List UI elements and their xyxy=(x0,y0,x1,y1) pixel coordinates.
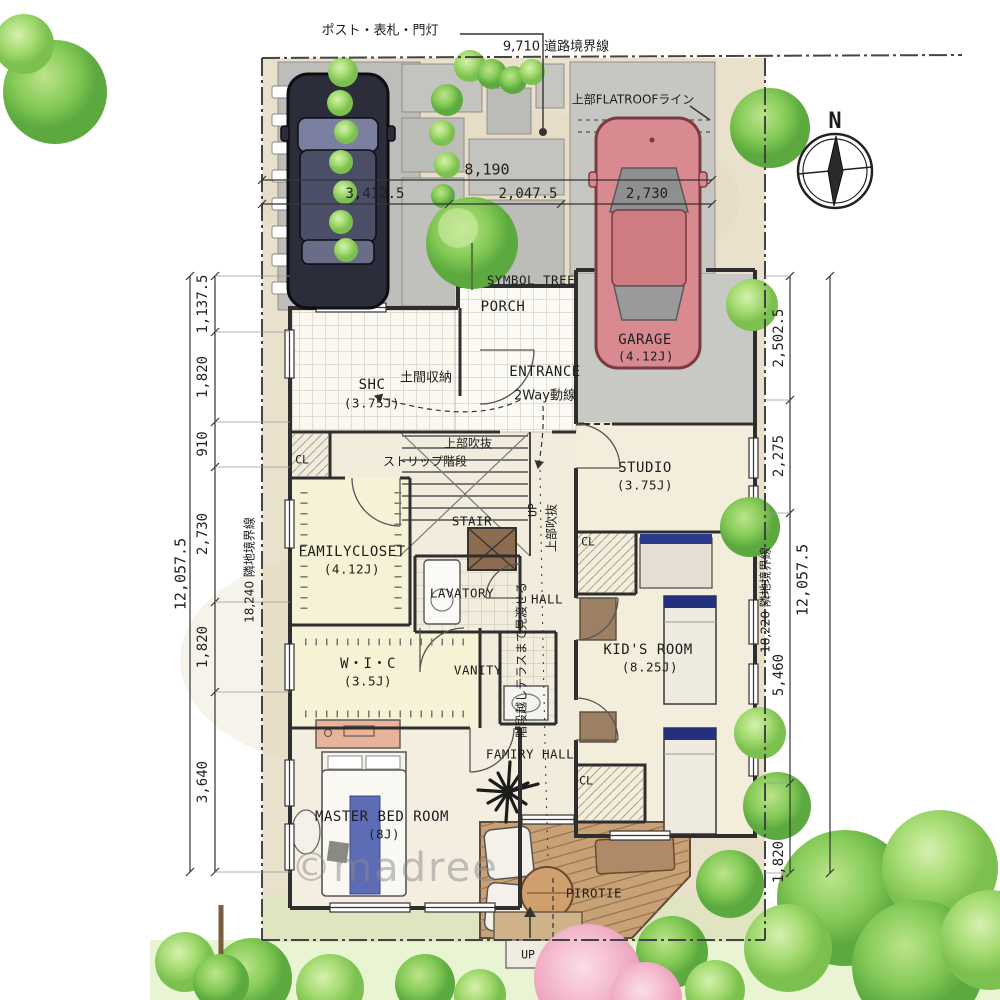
gate-light xyxy=(539,128,547,136)
road-boundary-label: 9,710 道路境界線 xyxy=(503,39,609,55)
room-label-stair: STAIR xyxy=(452,514,492,529)
closet-label-entry: CL xyxy=(295,453,309,467)
room-label-lavatory: LAVATORY xyxy=(430,586,494,601)
kids-dresser xyxy=(640,538,712,588)
room-label-shc: SHC xyxy=(359,377,386,393)
right-boundary-label: 18,220 隣地境界線 xyxy=(758,547,773,653)
symbol-tree-label: SYMBOL TREE xyxy=(487,273,575,288)
red-car xyxy=(589,118,707,368)
left-boundary-label: 18,240 隣地境界線 xyxy=(242,517,257,623)
room-label-famiry-hall: FAMIRY HALL xyxy=(486,747,574,762)
note-terrace-view: 階段越しテラスまで見渡せる xyxy=(514,582,529,738)
note-doma: 土間収納 xyxy=(400,371,452,386)
dim-left-seg-1: 1,137.5 xyxy=(195,274,211,333)
floorplan-page: ポスト・表札・門灯 9,710 道路境界線 上部FLATROOFライン 8,19… xyxy=(0,0,1000,1000)
kids-dresser-top xyxy=(640,534,712,544)
note-2way: 2Way動線 xyxy=(514,388,576,404)
room-size-familycloset: (4.12J) xyxy=(324,562,380,577)
dim-left-total: 12,057.5 xyxy=(172,538,190,610)
gate-note-label: ポスト・表札・門灯 xyxy=(321,24,438,39)
dim-left-seg-4: 2,730 xyxy=(195,513,211,555)
dim-top-seg-3: 2,730 xyxy=(626,186,668,202)
dim-right-total: 12,057.5 xyxy=(794,544,812,616)
note-void-1: 上部吹抜 xyxy=(444,436,492,451)
closet-label-kids: CL xyxy=(581,535,595,549)
note-up-stair: UP xyxy=(526,503,540,517)
dim-top-seg-2: 2,047.5 xyxy=(498,186,557,202)
room-label-vanity: VANITY xyxy=(454,663,502,678)
deck-bench xyxy=(595,836,675,874)
room-label-studio: STUDIO xyxy=(618,460,672,476)
dim-left-seg-6: 3,640 xyxy=(195,761,211,803)
compass-north-label: N xyxy=(828,109,841,134)
room-label-wic: W・I・C xyxy=(340,656,396,672)
dim-right-seg-1: 2,502.5 xyxy=(771,308,787,367)
room-size-studio: (3.75J) xyxy=(617,478,673,493)
room-label-pirotie: PIROTIE xyxy=(566,886,622,901)
master-dresser xyxy=(316,720,400,748)
room-label-hall: HALL xyxy=(531,592,563,607)
room-label-porch: PORCH xyxy=(481,299,526,315)
dim-right-seg-2: 2,275 xyxy=(771,435,787,477)
closet-label-hall: CL xyxy=(579,774,593,788)
dim-top-seg-1: 3,412.5 xyxy=(345,186,404,202)
flatroof-label: 上部FLATROOFライン xyxy=(572,92,695,107)
dim-left-seg-2: 1,820 xyxy=(195,356,211,398)
dim-right-seg-3: 5,460 xyxy=(771,654,787,696)
room-label-entrance: ENTRANCE xyxy=(509,364,580,380)
room-size-wic: (3.5J) xyxy=(344,674,392,689)
room-size-kids: (8.25J) xyxy=(622,660,678,675)
note-void-2: 上部吹抜 xyxy=(544,504,559,552)
dim-top-total: 8,190 xyxy=(464,161,509,179)
dim-right-seg-4: 1,820 xyxy=(771,841,787,883)
room-label-familycloset: FAMILYCLOSET xyxy=(298,544,405,560)
kids-bed xyxy=(664,728,716,834)
room-size-shc: (3.75J) xyxy=(344,396,400,411)
dim-left-seg-3: 910 xyxy=(195,431,211,456)
watermark: ©madree xyxy=(291,845,499,891)
note-up-steps: UP xyxy=(521,948,535,962)
room-label-garage: GARAGE xyxy=(618,332,672,348)
room-size-garage: (4.12J) xyxy=(618,349,674,364)
room-label-kids: KID'S ROOM xyxy=(603,642,692,658)
floorplan-canvas: ポスト・表札・門灯 9,710 道路境界線 上部FLATROOFライン 8,19… xyxy=(0,0,1000,1000)
room-size-master: (8J) xyxy=(368,827,400,842)
dim-left-seg-5: 1,820 xyxy=(195,626,211,668)
note-strip-stair: ストリップ階段 xyxy=(383,454,467,469)
room-label-master: MASTER BED ROOM xyxy=(315,809,449,825)
